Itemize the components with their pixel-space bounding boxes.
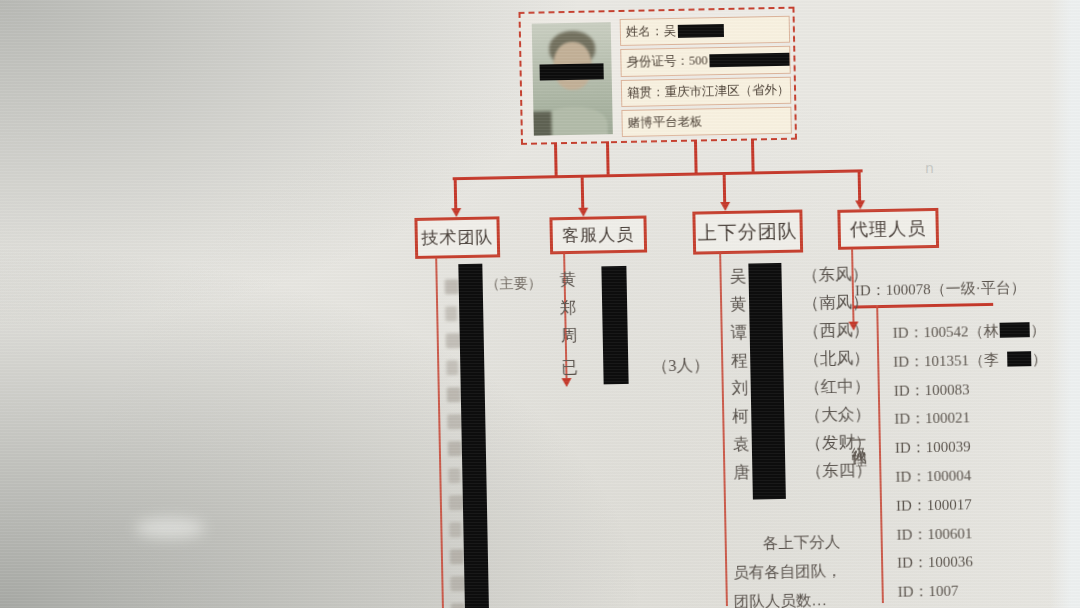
blurred-name-fragment [451, 603, 465, 608]
service-member: 周 [561, 322, 710, 353]
connector-stub-3 [694, 140, 698, 176]
blurred-name-fragment [445, 306, 457, 321]
field-id-label: 身份证号： [626, 53, 689, 71]
agent-id: ID：1007 [898, 583, 959, 600]
agent-id-row: ID：100039 [895, 436, 1049, 468]
blurred-name-fragment [445, 279, 459, 294]
agent-top-entry: ID：100078（一级·平台） [855, 278, 1026, 300]
blurred-name-fragment [448, 468, 460, 483]
service-footer-suffix: （3人） [652, 355, 710, 375]
agent-id: ID：100021 [894, 410, 970, 427]
service-footer: 已（3人） [561, 354, 710, 385]
agent-id: ID：100542 [893, 323, 969, 340]
field-id-value: 500 [689, 54, 708, 69]
drop-line-service [581, 175, 585, 209]
member-tag: （北风） [804, 348, 870, 368]
drop-line-updown [723, 172, 727, 203]
updown-branch-line [719, 253, 728, 606]
tech-main-note: （主要） [486, 275, 542, 294]
agent-name-prefix: （李 [969, 352, 999, 369]
member-tag: （红中） [804, 376, 870, 396]
connector-stub-2 [606, 141, 610, 177]
agent-id: ID：100083 [894, 381, 970, 398]
connector-rail [453, 169, 863, 180]
arrow-down-icon [451, 208, 461, 217]
member-tag: （东四） [806, 460, 872, 480]
field-origin-value: 重庆市江津区（省外） [664, 81, 789, 100]
note-line: 各上下分人 [732, 526, 869, 558]
member-surname: 黄 [730, 295, 747, 314]
agent-name-suffix: ） [1030, 322, 1045, 338]
blurred-name-fragment [450, 549, 464, 564]
drop-line-tech [454, 177, 458, 209]
agent-id-row: ID：100083 [894, 378, 1048, 410]
name-redaction-bar [678, 24, 724, 38]
arrow-down-icon [578, 208, 588, 217]
arrow-down-icon [855, 200, 865, 209]
id-redaction-bar [710, 53, 790, 68]
agent-id-list: ID：100542（林） ID：101351（李） ID：100083 ID：1… [893, 321, 1052, 608]
branch-box-agent: 代理人员 [837, 208, 939, 250]
member-surname: 程 [731, 351, 748, 370]
agent-id: ID：100036 [897, 554, 973, 571]
agent-id-row: ID：100601 [896, 522, 1050, 554]
drop-line-agent [858, 169, 862, 201]
field-id-number: 身份证号：500 [620, 46, 790, 77]
field-name-label: 姓名： [626, 23, 664, 41]
connector-stub-4 [751, 138, 755, 174]
field-role-value: 赌博平台老板 [627, 113, 702, 131]
org-chart-document: 姓名：吴 身份证号：500 籍贯：重庆市江津区（省外） 赌博平台老板 技术团队 … [0, 0, 1080, 608]
member-tag: （大众） [805, 404, 871, 424]
blurred-name-fragment [446, 360, 458, 375]
blurred-name-fragment [448, 441, 462, 456]
field-origin-label: 籍贯： [627, 84, 665, 102]
agent-id-row: ID：100004 [895, 465, 1049, 497]
field-origin: 籍贯：重庆市江津区（省外） [621, 76, 791, 107]
agent-id: ID：100601 [896, 525, 972, 542]
member-surname: 刘 [732, 379, 749, 398]
service-member: 郑 [560, 294, 709, 325]
blurred-name-fragment [447, 387, 461, 402]
branch-box-tech: 技术团队 [414, 216, 500, 259]
agent-id-row-clipped: ID：1007 [898, 580, 1052, 608]
agent-id: ID：100017 [896, 496, 972, 513]
agent-id: ID：100039 [895, 439, 971, 456]
member-tag: （西风） [803, 320, 869, 340]
blurred-name-fragment [449, 495, 464, 510]
blurred-name-fragment [450, 576, 465, 591]
updown-roster-redaction-bar [748, 263, 786, 500]
member-surname: 吴 [729, 267, 746, 286]
eye-redaction-bar [539, 63, 603, 80]
agent-name-suffix: ） [1032, 351, 1047, 367]
member-surname: 唐 [733, 463, 750, 482]
agent-id: ID：101351 [893, 352, 969, 369]
branch-box-service: 客服人员 [549, 216, 647, 255]
field-name-value: 吴 [663, 23, 676, 40]
agent-sublist-line [876, 305, 884, 603]
agent-name-redaction-bar [999, 322, 1029, 338]
id-photo [532, 22, 613, 135]
profile-fields: 姓名：吴 身份证号：500 籍贯：重庆市江津区（省外） 赌博平台老板 [620, 16, 792, 137]
agent-id-row: ID：101351（李） [893, 350, 1047, 382]
note-line: 员有各自团队， [733, 555, 870, 587]
blurred-name-fragment [446, 333, 461, 348]
agent-id-row: ID：100036 [897, 551, 1051, 583]
service-roster-redaction-bar [601, 266, 628, 384]
agent-side-label: 一级代理 [849, 432, 868, 444]
member-surname: 袁 [733, 435, 750, 454]
service-footer-prefix: 已 [561, 358, 578, 377]
blurred-name-fragment [447, 414, 462, 429]
agent-id-row: ID：100021 [894, 407, 1048, 439]
agent-name-prefix: （林 [968, 323, 998, 340]
service-member: 黄 [559, 266, 708, 297]
photo-jacket [532, 111, 552, 135]
agent-id: ID：100004 [895, 467, 971, 484]
field-role: 赌博平台老板 [621, 106, 791, 137]
service-roster: 黄 郑 周 已（3人） [559, 266, 709, 385]
arrow-down-icon [720, 202, 730, 211]
branch-box-updown: 上下分团队 [692, 210, 803, 255]
connector-stub-1 [554, 142, 558, 178]
updown-note: 各上下分人 员有各自团队， 团队人员数… [732, 526, 870, 608]
agent-bracket-horizontal [853, 303, 993, 308]
agent-id-row: ID：100542（林） [893, 321, 1047, 353]
member-surname: 柯 [732, 407, 749, 426]
agent-id-row: ID：100017 [896, 494, 1050, 526]
field-name: 姓名：吴 [620, 16, 790, 47]
boss-profile-card: 姓名：吴 身份证号：500 籍贯：重庆市江津区（省外） 赌博平台老板 [518, 7, 797, 145]
tech-branch-line [435, 258, 444, 608]
agent-name-redaction-bar [1007, 351, 1031, 366]
note-line: 团队人员数… [734, 584, 871, 608]
member-surname: 谭 [730, 323, 747, 342]
blurred-name-fragment [449, 522, 461, 537]
